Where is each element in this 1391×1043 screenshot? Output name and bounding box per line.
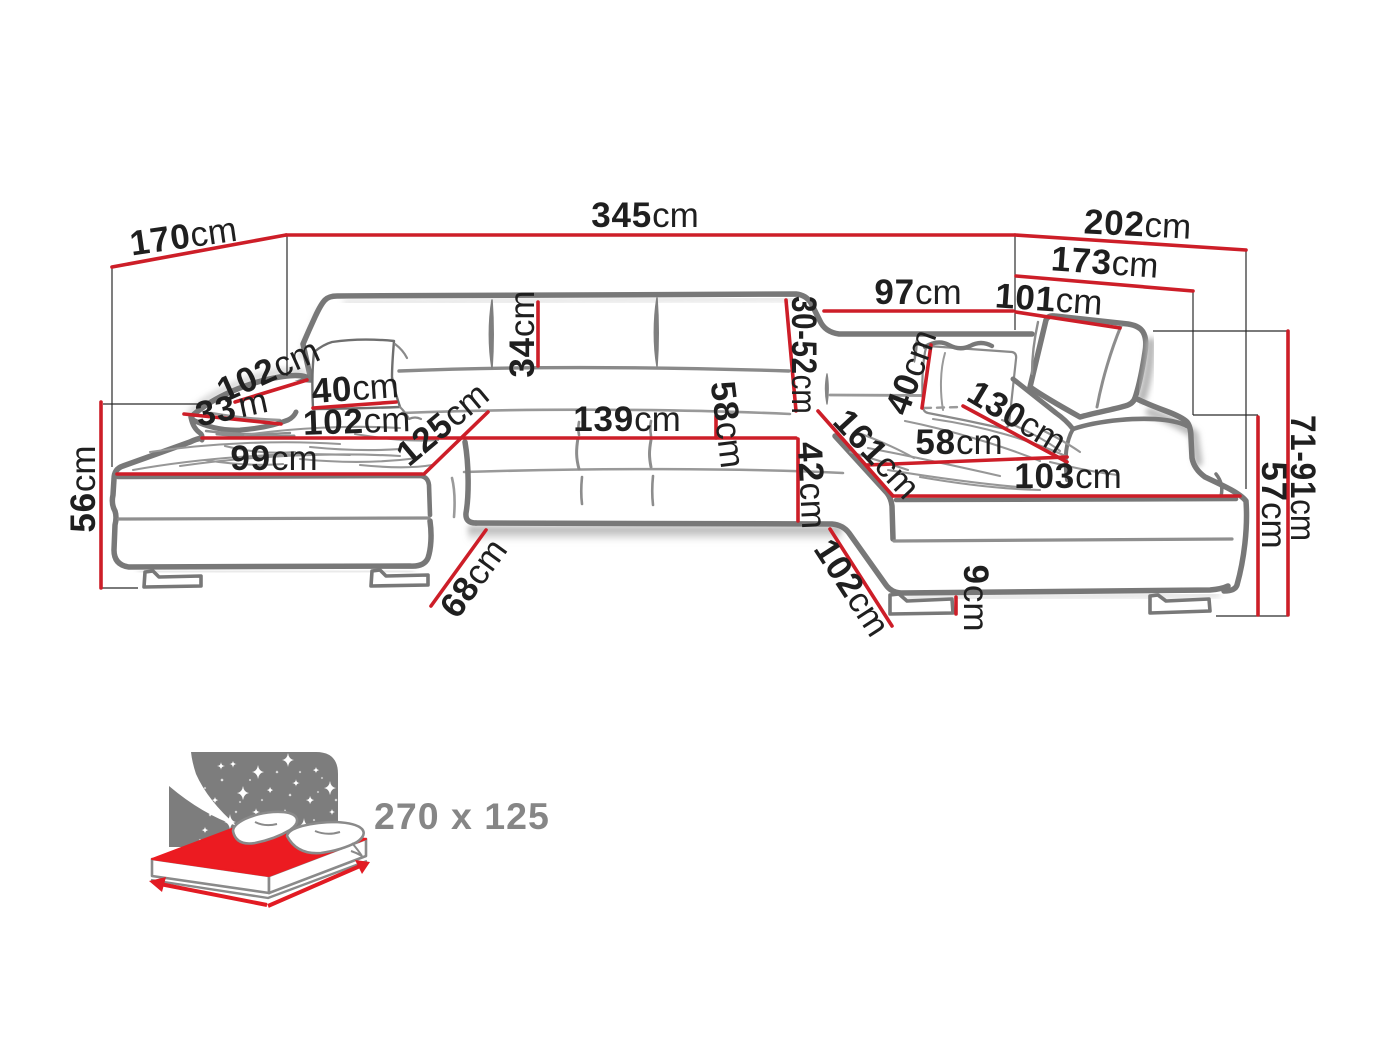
svg-text:139cm: 139cm [573, 400, 680, 439]
svg-text:102cm: 102cm [302, 400, 411, 443]
svg-text:30-52cm: 30-52cm [784, 296, 823, 414]
svg-text:97cm: 97cm [874, 273, 961, 312]
svg-text:42cm: 42cm [790, 441, 834, 530]
svg-text:173cm: 173cm [1050, 239, 1160, 285]
svg-text:56cm: 56cm [64, 445, 103, 532]
svg-text:270 x 125: 270 x 125 [374, 795, 550, 837]
svg-text:57cm: 57cm [1254, 461, 1293, 548]
svg-text:58cm: 58cm [915, 423, 1002, 462]
svg-text:345cm: 345cm [591, 196, 698, 235]
svg-text:99cm: 99cm [230, 439, 317, 478]
svg-text:9cm: 9cm [956, 565, 995, 632]
svg-text:34cm: 34cm [503, 290, 542, 377]
svg-text:101cm: 101cm [994, 276, 1104, 322]
svg-text:202cm: 202cm [1083, 202, 1192, 247]
svg-text:103cm: 103cm [1014, 457, 1121, 496]
